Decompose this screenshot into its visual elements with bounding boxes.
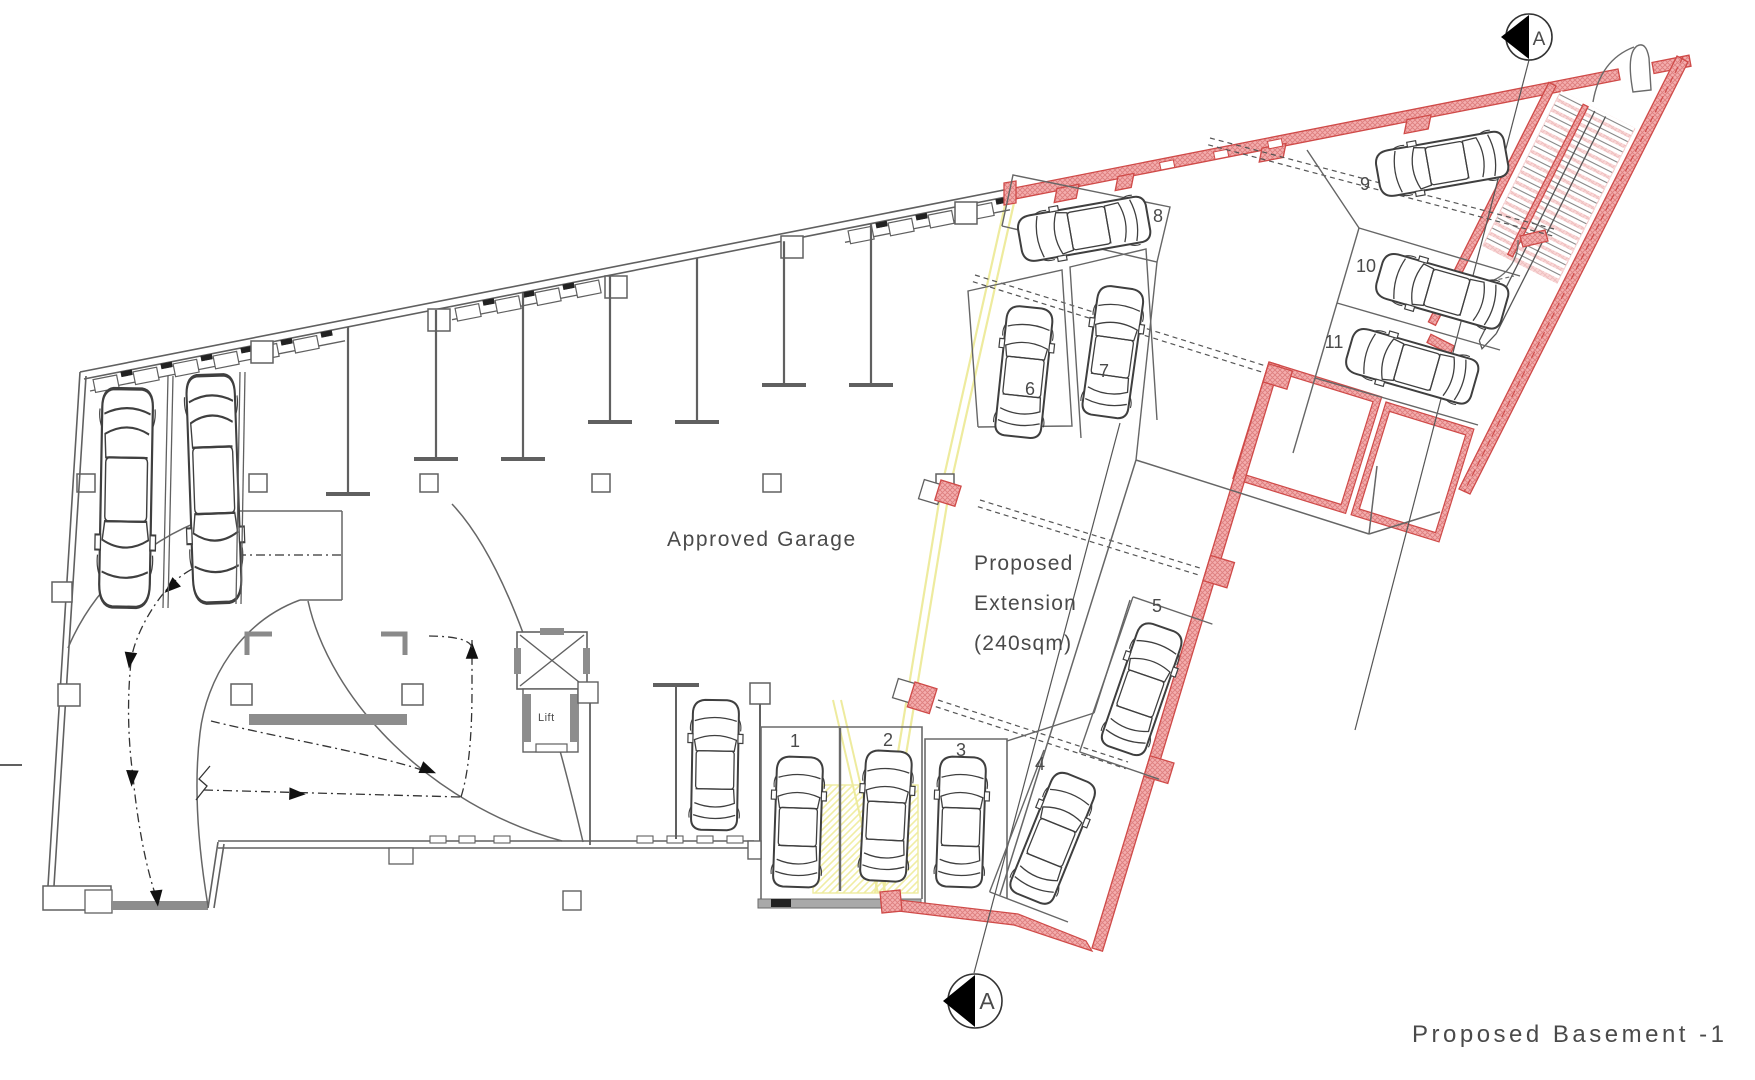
svg-text:Approved Garage: Approved Garage: [667, 528, 857, 551]
svg-text:11: 11: [1325, 332, 1344, 352]
svg-text:4: 4: [1035, 754, 1045, 774]
svg-text:5: 5: [1152, 596, 1162, 616]
svg-text:Proposed: Proposed: [974, 552, 1074, 575]
svg-text:2: 2: [883, 730, 893, 750]
svg-text:Lift: Lift: [538, 712, 555, 724]
svg-text:8: 8: [1153, 206, 1163, 226]
svg-text:(240sqm): (240sqm): [974, 632, 1072, 655]
svg-text:6: 6: [1025, 379, 1035, 399]
svg-text:1: 1: [790, 731, 800, 751]
svg-text:A: A: [1533, 29, 1546, 50]
svg-text:Proposed Basement -1: Proposed Basement -1: [1412, 1021, 1727, 1048]
svg-text:9: 9: [1360, 174, 1370, 194]
svg-text:7: 7: [1099, 361, 1109, 381]
svg-text:10: 10: [1356, 256, 1376, 276]
svg-text:3: 3: [956, 740, 966, 760]
svg-text:A: A: [979, 988, 995, 1014]
svg-text:Extension: Extension: [974, 592, 1077, 615]
